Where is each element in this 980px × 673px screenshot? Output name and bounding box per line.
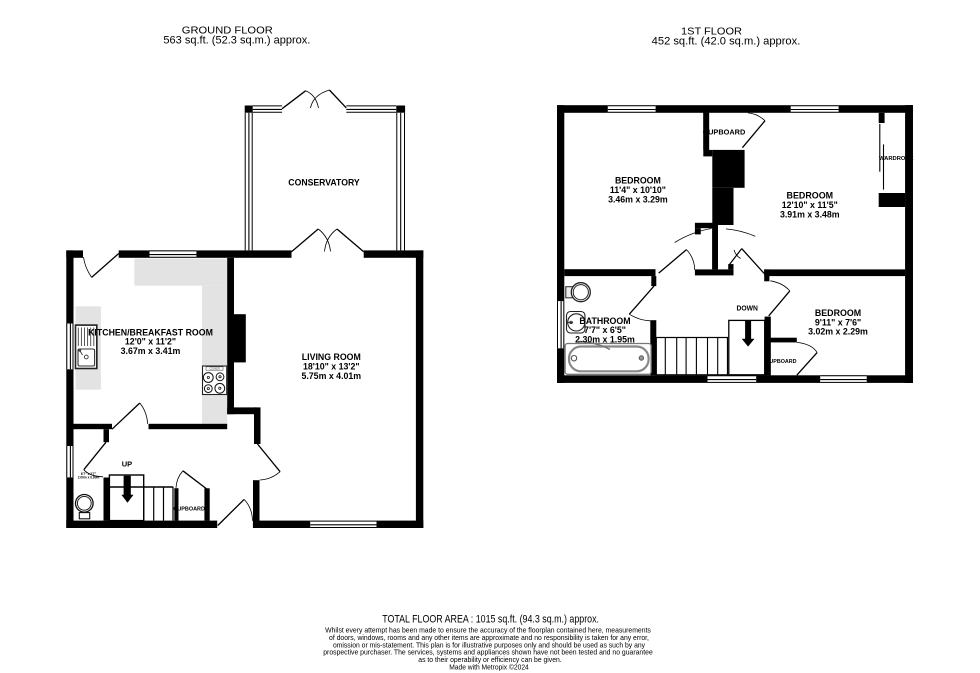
svg-text:UP: UP — [122, 459, 132, 468]
svg-text:CUPBOARD: CUPBOARD — [703, 127, 746, 136]
svg-text:5.75m x 4.01m: 5.75m x 4.01m — [301, 371, 361, 381]
svg-text:11'4" x 10'10": 11'4" x 10'10" — [610, 185, 666, 195]
svg-text:3.91m x 3.48m: 3.91m x 3.48m — [780, 209, 840, 219]
svg-text:3.02m x 2.29m: 3.02m x 2.29m — [808, 327, 868, 337]
svg-text:BEDROOM: BEDROOM — [615, 175, 661, 185]
svg-text:18'10" x 13'2": 18'10" x 13'2" — [303, 362, 360, 372]
svg-text:563 sq.ft. (52.3 sq.m.) approx: 563 sq.ft. (52.3 sq.m.) approx. — [163, 35, 310, 47]
svg-text:2.30m x 1.95m: 2.30m x 1.95m — [575, 334, 635, 344]
svg-text:TOTAL FLOOR AREA : 1015 sq.ft.: TOTAL FLOOR AREA : 1015 sq.ft. (94.3 sq.… — [382, 613, 599, 625]
svg-text:3.67m x 3.41m: 3.67m x 3.41m — [121, 346, 181, 356]
svg-text:452 sq.ft. (42.0 sq.m.) approx: 452 sq.ft. (42.0 sq.m.) approx. — [652, 36, 801, 48]
svg-text:3.46m x 3.29m: 3.46m x 3.29m — [608, 195, 668, 205]
svg-text:CONSERVATORY: CONSERVATORY — [288, 178, 360, 188]
svg-text:Made with Metropix ©2024: Made with Metropix ©2024 — [449, 662, 529, 671]
svg-text:DOWN: DOWN — [737, 304, 758, 313]
svg-text:2.00m x 0.80m: 2.00m x 0.80m — [78, 476, 100, 480]
svg-text:COOKER: COOKER — [209, 368, 220, 371]
